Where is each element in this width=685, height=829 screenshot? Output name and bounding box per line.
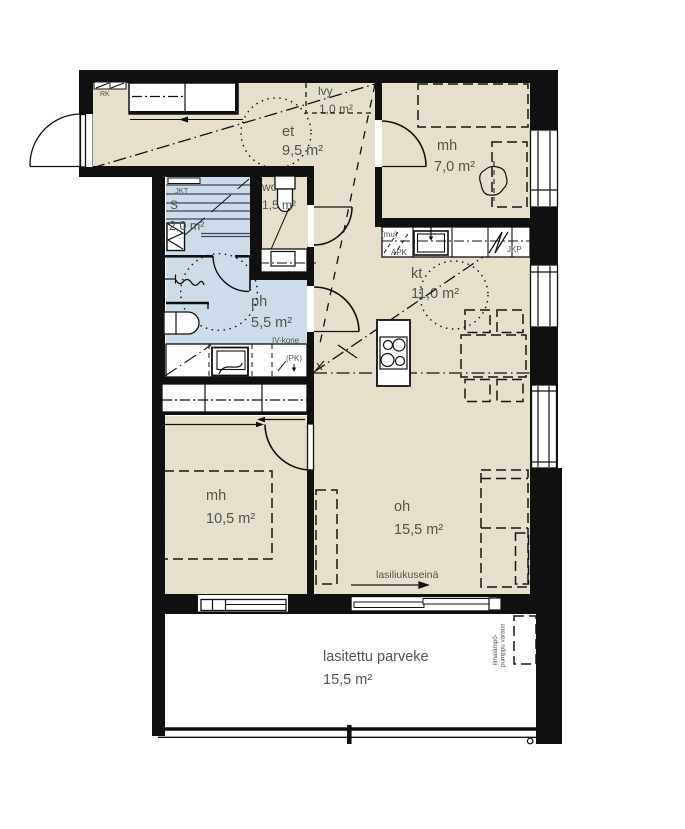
svg-text:lasitettu parveke: lasitettu parveke	[323, 649, 429, 665]
svg-text:et: et	[282, 124, 294, 140]
svg-text:S: S	[170, 198, 178, 212]
svg-text:APK: APK	[391, 248, 408, 257]
svg-text:wc: wc	[261, 180, 277, 194]
svg-text:7,0 m²: 7,0 m²	[434, 159, 475, 175]
svg-text:kt: kt	[411, 266, 422, 282]
svg-text:(PK): (PK)	[286, 354, 302, 363]
svg-text:lasiliukuseinä: lasiliukuseinä	[376, 569, 439, 581]
svg-text:11,0 m²: 11,0 m²	[411, 286, 459, 302]
svg-text:2,0 m²: 2,0 m²	[169, 219, 204, 233]
svg-text:15,5 m²: 15,5 m²	[394, 522, 443, 538]
svg-text:ilmalämpö-: ilmalämpö-	[492, 634, 499, 665]
svg-text:lvy: lvy	[318, 84, 333, 98]
svg-text:oh: oh	[394, 499, 410, 515]
svg-text:1,0 m²: 1,0 m²	[319, 102, 353, 116]
svg-text:JKP: JKP	[507, 245, 522, 254]
svg-text:(mu): (mu)	[381, 230, 398, 239]
svg-text:pumppu varaus: pumppu varaus	[500, 624, 507, 667]
svg-text:15,5 m²: 15,5 m²	[323, 672, 372, 688]
svg-text:JKT: JKT	[175, 186, 189, 195]
svg-text:mh: mh	[437, 138, 457, 154]
svg-text:1,5 m²: 1,5 m²	[262, 198, 296, 212]
svg-text:ph: ph	[251, 294, 267, 310]
svg-text:10,5 m²: 10,5 m²	[206, 511, 255, 527]
svg-text:RK: RK	[100, 91, 110, 98]
svg-text:mh: mh	[206, 488, 226, 504]
svg-text:5,5 m²: 5,5 m²	[251, 315, 292, 331]
